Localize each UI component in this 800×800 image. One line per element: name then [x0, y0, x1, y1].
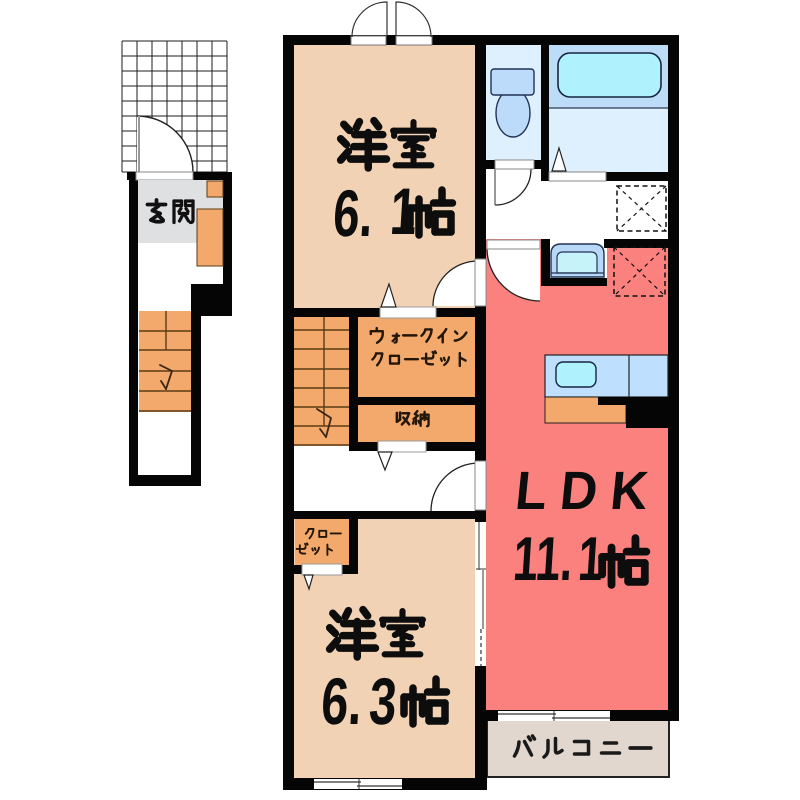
svg-text:LDK: LDK [513, 461, 664, 521]
svg-text:1: 1 [388, 176, 419, 249]
svg-text:6.: 6. [331, 178, 375, 251]
svg-text:11.: 11. [511, 525, 575, 594]
svg-text:6.: 6. [319, 665, 365, 739]
svg-text:3: 3 [367, 665, 399, 739]
